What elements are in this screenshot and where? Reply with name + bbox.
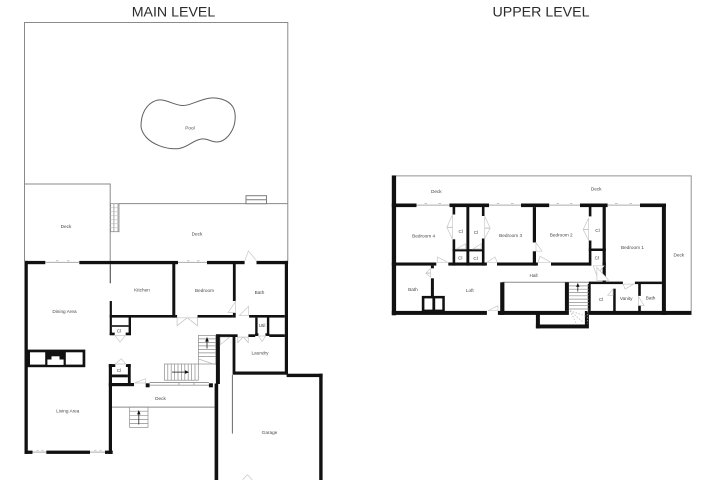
svg-text:Cl: Cl	[473, 256, 477, 261]
svg-text:Deck: Deck	[673, 252, 684, 257]
svg-text:Bedroom: Bedroom	[195, 288, 214, 293]
svg-text:Bedroom 1: Bedroom 1	[621, 245, 644, 250]
svg-text:Kitchen: Kitchen	[134, 288, 150, 293]
svg-text:Bedroom 2: Bedroom 2	[550, 232, 573, 237]
svg-text:Garage: Garage	[262, 430, 278, 435]
svg-text:Cl: Cl	[458, 229, 462, 234]
svg-text:Pool: Pool	[185, 125, 194, 130]
svg-text:Deck: Deck	[591, 187, 602, 192]
svg-text:Cl: Cl	[117, 368, 121, 373]
svg-text:Cl: Cl	[474, 230, 478, 235]
svg-text:Bath: Bath	[646, 295, 656, 300]
svg-text:Cl: Cl	[595, 256, 599, 261]
svg-text:Loft: Loft	[466, 288, 475, 293]
svg-text:Laundry: Laundry	[252, 351, 270, 356]
svg-text:MAIN LEVEL: MAIN LEVEL	[132, 4, 216, 20]
svg-text:Cl: Cl	[599, 297, 603, 302]
svg-text:Cl: Cl	[595, 228, 599, 233]
svg-text:Deck: Deck	[155, 396, 166, 401]
svg-text:Cl: Cl	[458, 256, 462, 261]
svg-text:UPPER LEVEL: UPPER LEVEL	[493, 4, 590, 20]
svg-text:Cl: Cl	[117, 329, 121, 334]
svg-text:Vanity: Vanity	[620, 296, 633, 301]
svg-text:Bedroom 3: Bedroom 3	[499, 233, 522, 238]
svg-text:Util: Util	[259, 323, 266, 328]
svg-text:Bath: Bath	[255, 290, 265, 295]
svg-text:Deck: Deck	[431, 189, 442, 194]
svg-text:Deck: Deck	[192, 232, 203, 237]
svg-text:Hall: Hall	[529, 273, 537, 278]
svg-text:Bedroom 4: Bedroom 4	[412, 234, 435, 239]
svg-text:Living Area: Living Area	[56, 409, 80, 414]
svg-text:Bath: Bath	[408, 287, 418, 292]
svg-text:Deck: Deck	[61, 224, 72, 229]
svg-text:Dining Area: Dining Area	[52, 309, 77, 314]
